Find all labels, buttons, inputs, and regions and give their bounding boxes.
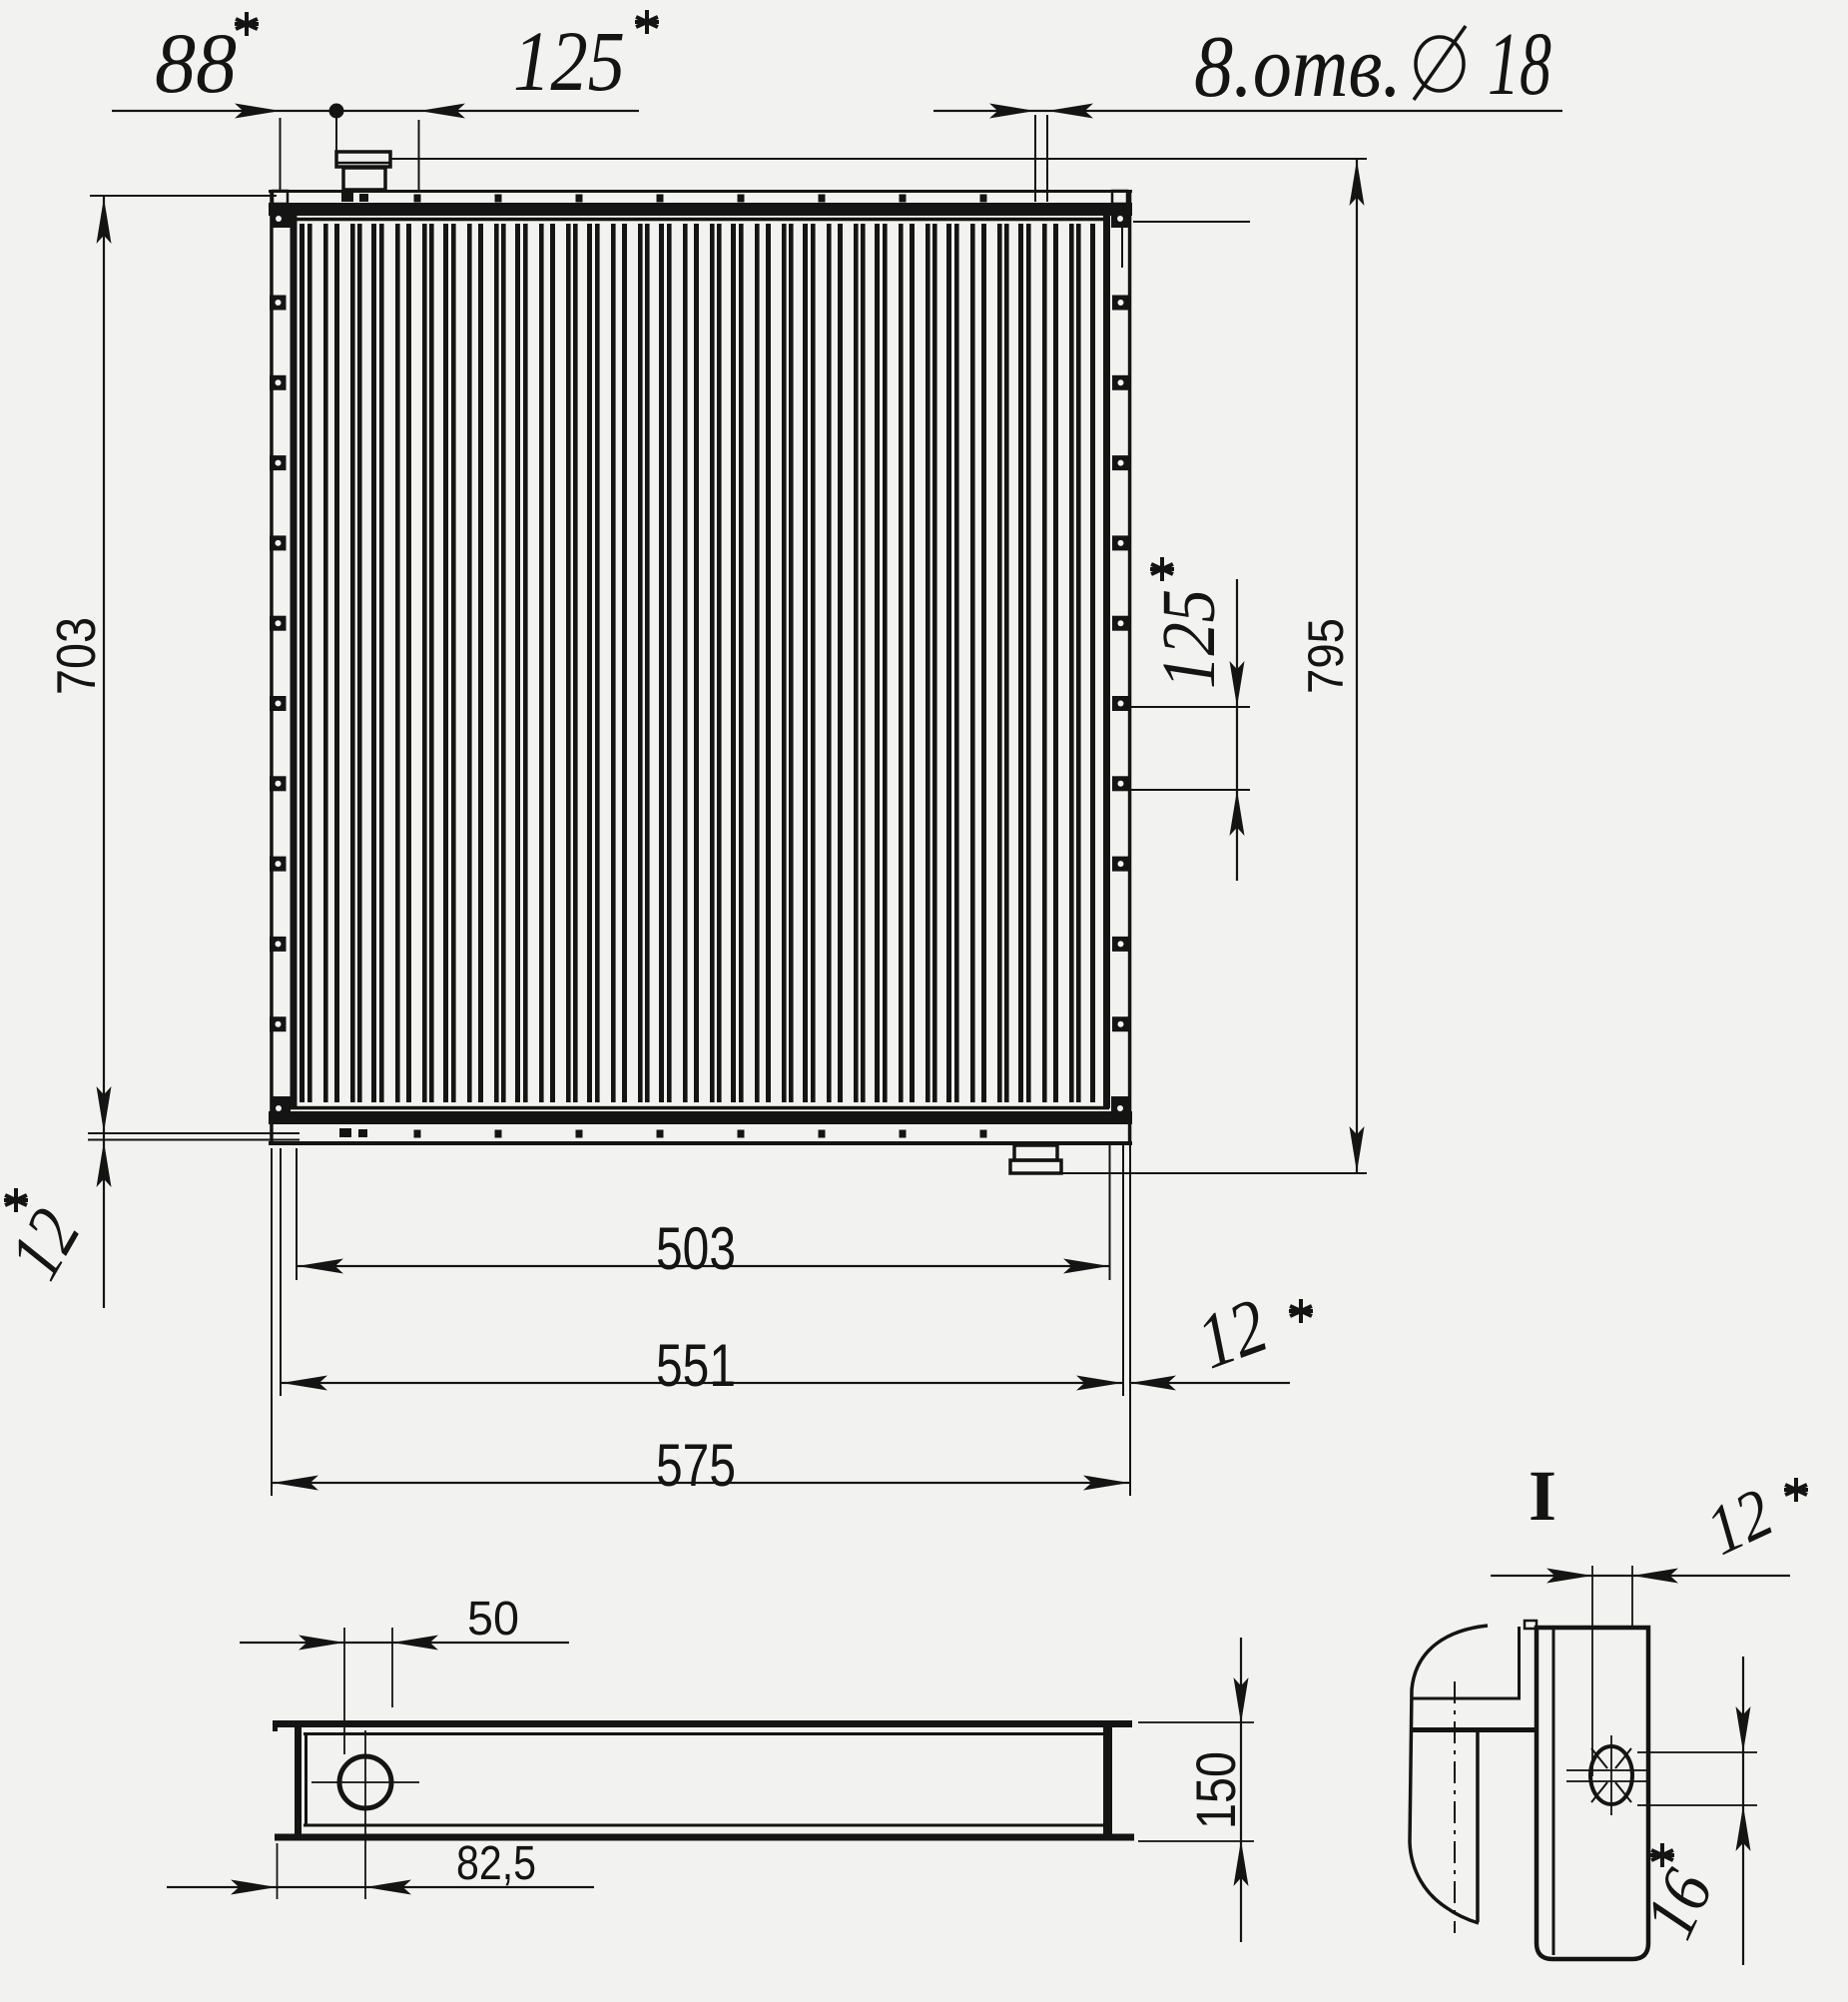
svg-text:551: 551 [656,1332,736,1399]
svg-text:125: 125 [513,13,625,109]
svg-text:12: 12 [1186,1281,1278,1385]
svg-text:150: 150 [1184,1751,1247,1829]
svg-text:8.отв.: 8.отв. [1194,19,1402,116]
svg-text:I: I [1529,1456,1556,1536]
svg-text:50: 50 [467,1593,519,1646]
svg-text:88: 88 [155,15,237,111]
svg-text:18: 18 [1488,15,1551,114]
svg-text:125: 125 [1147,589,1231,689]
svg-text:703: 703 [45,617,107,695]
svg-text:82,5: 82,5 [456,1837,536,1890]
svg-text:12: 12 [1695,1475,1784,1571]
svg-text:16: 16 [1628,1858,1728,1950]
svg-text:795: 795 [1298,618,1354,694]
svg-text:575: 575 [656,1432,736,1499]
svg-text:503: 503 [656,1215,736,1282]
